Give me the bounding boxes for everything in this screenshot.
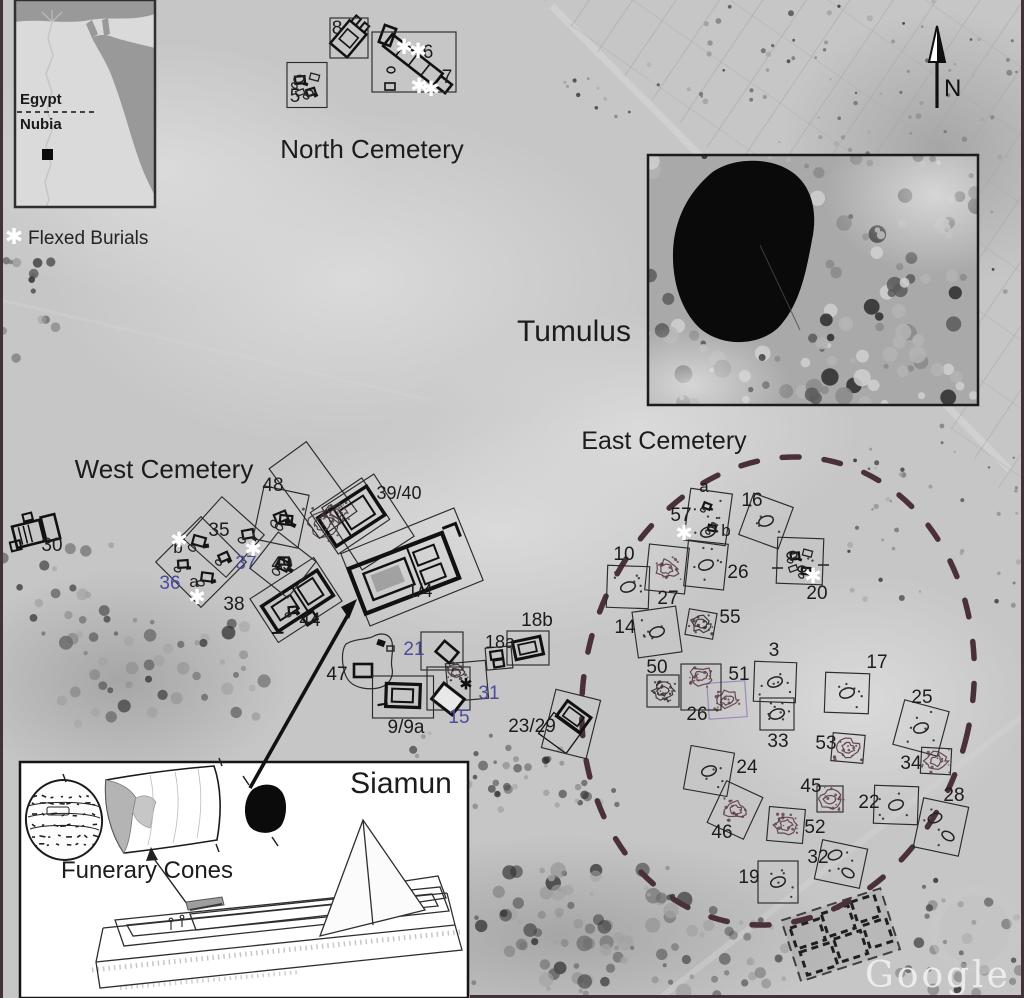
legend-label: Flexed Burials — [28, 228, 148, 249]
tomb-label-5: 5 — [290, 86, 301, 107]
tomb-label-17: 17 — [866, 652, 887, 673]
tomb-marker-44: 44 — [299, 610, 321, 631]
tomb-label-19: 19 — [738, 867, 759, 888]
tomb-marker-1/4: 1/4 — [407, 581, 432, 601]
tomb-label-7: 7 — [442, 67, 453, 88]
tomb-label-55: 55 — [719, 607, 740, 628]
tomb-label-10: 10 — [613, 544, 634, 565]
funerary-cones-caption: Funerary Cones — [61, 857, 233, 884]
tomb-label-26: 26 — [686, 704, 707, 725]
tomb-marker-b: b — [721, 521, 730, 540]
tomb-label-47: 47 — [326, 664, 347, 685]
tomb-label-31: 31 — [478, 683, 499, 704]
tomb-label-53: 53 — [815, 733, 836, 754]
tomb-label-35: 35 — [208, 520, 229, 541]
flexed-burial-asterisk: ✱ — [170, 528, 188, 552]
tomb-marker-38: 38 — [223, 594, 244, 615]
tomb-label-14: 14 — [614, 617, 636, 638]
tomb-label-24: 24 — [736, 757, 758, 778]
tomb-label-a: a — [699, 477, 709, 496]
tumulus-title: Tumulus — [517, 315, 631, 348]
location-inset-map: Egypt Nubia — [15, 0, 155, 207]
flexed-burial-asterisk: ✱ — [409, 39, 427, 63]
flexed-burial-asterisk: ✱ — [5, 225, 23, 250]
tomb-label-8: 8 — [332, 18, 343, 39]
flexed-burial-asterisk: ✱ — [188, 585, 206, 609]
google-watermark: Google — [865, 955, 1011, 996]
tomb-marker-7: 7 — [442, 67, 453, 88]
tomb-marker-39/40: 39/40 — [376, 483, 421, 503]
tomb-label-18b: 18b — [521, 610, 553, 631]
tomb-label-b: b — [721, 521, 730, 540]
tomb-marker-30: 30 — [41, 535, 62, 556]
tomb-label-28: 28 — [943, 785, 964, 806]
tomb-label-32: 32 — [807, 847, 828, 868]
tomb-marker-36: 36 — [159, 573, 180, 594]
tomb-label-49: 49 — [271, 554, 292, 575]
tomb-label-34: 34 — [900, 753, 922, 774]
siamun-title: Siamun — [350, 767, 452, 800]
marker-asterisk: ✱ — [459, 675, 472, 694]
tomb-label-52: 52 — [804, 817, 825, 838]
tomb-label-26: 26 — [727, 562, 748, 583]
tumulus-inset — [590, 115, 1024, 445]
flexed-burial-asterisk: ✱ — [804, 564, 822, 588]
nubia-label: Nubia — [20, 116, 62, 133]
tomb-label-25: 25 — [911, 687, 932, 708]
tomb-label-33: 33 — [767, 731, 788, 752]
tomb-label-22: 22 — [858, 792, 879, 813]
tomb-label-1/4: 1/4 — [407, 581, 432, 601]
tomb-label-44: 44 — [299, 610, 321, 631]
site-marker — [42, 149, 53, 160]
flexed-burial-asterisk: ✱ — [244, 537, 262, 561]
map-scene: 8567304835b374936a384439/401/4472131159/… — [0, 0, 1024, 998]
tomb-label-16: 16 — [741, 490, 762, 511]
archaeological-map-figure: 8567304835b374936a384439/401/4472131159/… — [0, 0, 1024, 998]
tomb-label-15: 15 — [448, 707, 469, 728]
tomb-label-23/29: 23/29 — [508, 716, 556, 737]
flexed-burial-asterisk: ✱ — [422, 77, 440, 101]
tomb-label-45: 45 — [800, 776, 821, 797]
egypt-label: Egypt — [20, 91, 62, 108]
tomb-label-3: 3 — [769, 640, 780, 661]
tomb-marker-a: a — [699, 477, 709, 496]
tomb-marker-47: 47 — [326, 664, 347, 685]
tomb-label-46: 46 — [711, 822, 732, 843]
tomb-label-48: 48 — [262, 475, 283, 496]
flexed-burial-asterisk: ✱ — [675, 521, 693, 545]
tomb-label-21: 21 — [403, 639, 424, 660]
tomb-label-9/9a: 9/9a — [388, 717, 425, 738]
tomb-label-39/40: 39/40 — [376, 483, 421, 503]
tomb-label-51: 51 — [728, 664, 749, 685]
north-cemetery-title: North Cemetery — [280, 134, 464, 164]
tomb-label-30: 30 — [41, 535, 62, 556]
tomb-label-38: 38 — [223, 594, 244, 615]
tomb-label-18a: 18a — [485, 632, 516, 652]
north-label: N — [944, 75, 961, 102]
tomb-label-50: 50 — [646, 657, 667, 678]
tomb-label-36: 36 — [159, 573, 180, 594]
east-cemetery-title: East Cemetery — [581, 427, 747, 455]
west-cemetery-title: West Cemetery — [75, 454, 254, 484]
tomb-marker-15: 15 — [448, 707, 469, 728]
figure-border-left — [0, 0, 3, 998]
tomb-marker-31: 31 — [478, 683, 499, 704]
